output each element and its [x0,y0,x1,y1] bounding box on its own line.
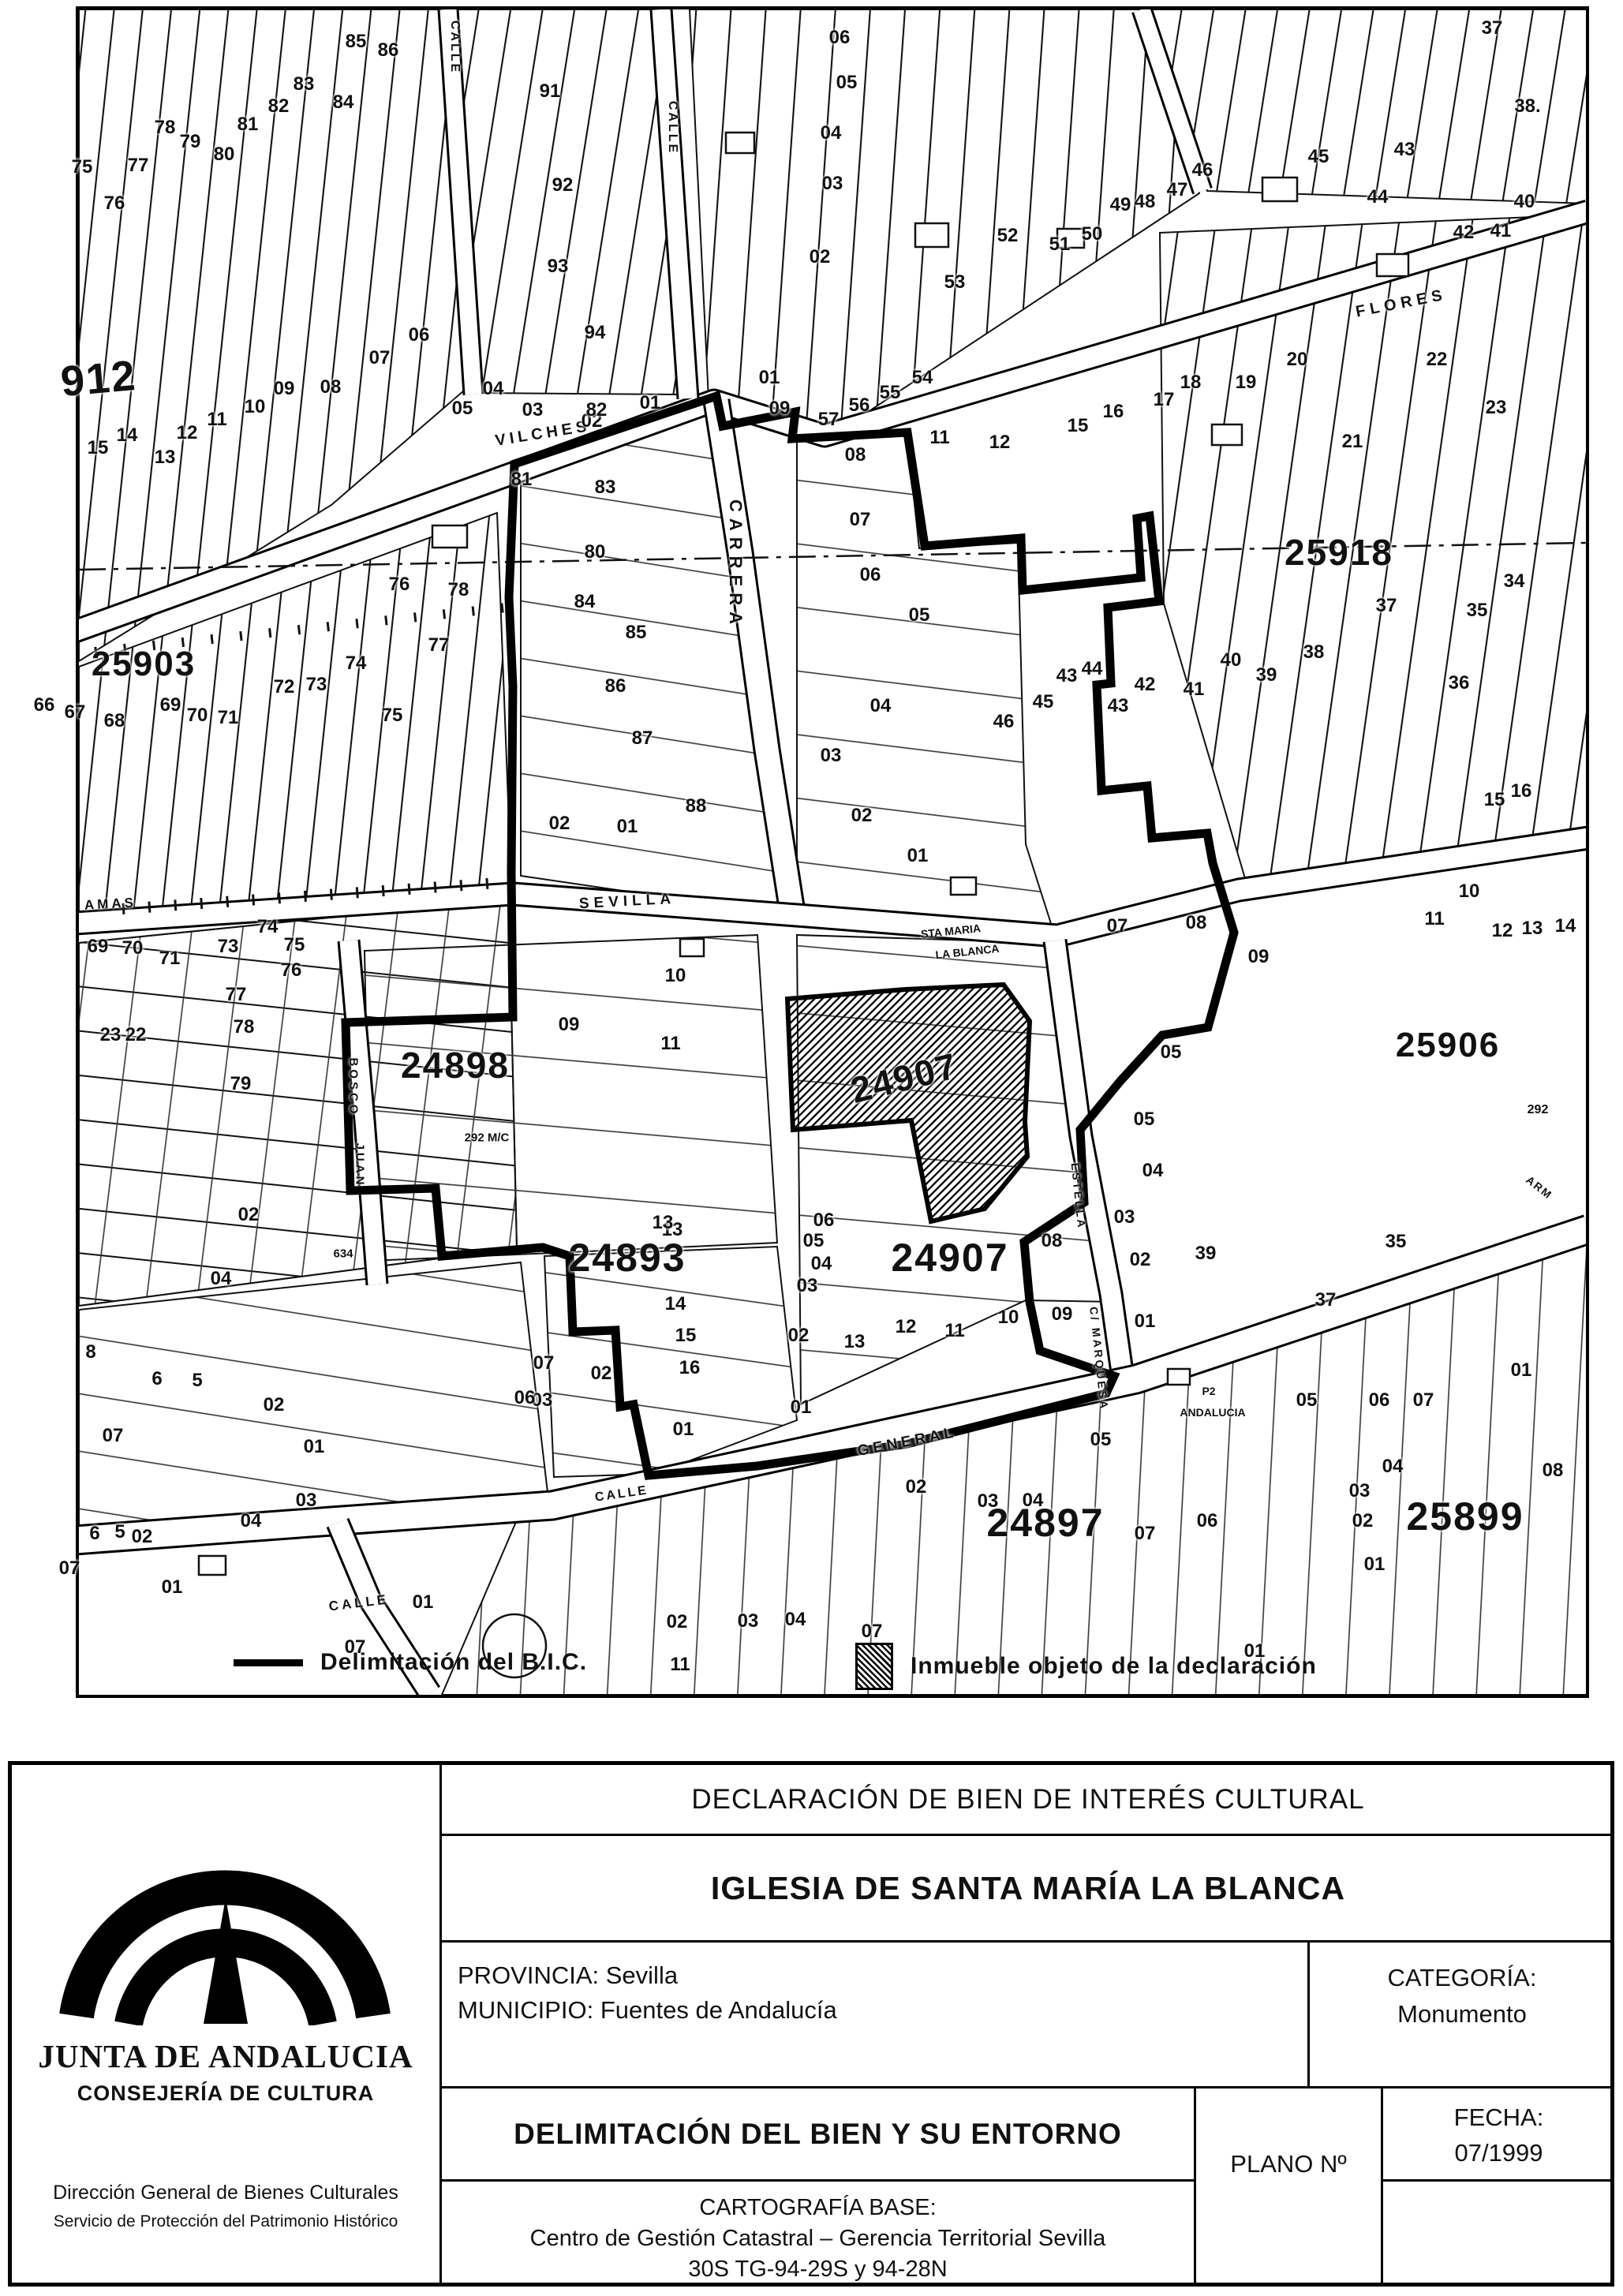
parcel-number: 77 [128,155,149,177]
parcel-number: 72 [274,676,295,698]
parcel-number: 02 [264,1394,285,1416]
parcel-number: 10 [998,1307,1019,1329]
categoria-label: CATEGORÍA: [1310,1960,1614,1996]
parcel-number: 44 [1367,186,1389,208]
parcel-number: 70 [122,937,144,959]
parcel-number: 40 [1514,191,1535,213]
parcel-number: 38. [1514,95,1540,118]
parcel-number: 11 [660,1033,680,1055]
title-block: JUNTA DE ANDALUCIA CONSEJERÍA DE CULTURA… [8,1761,1614,2287]
parcel-number: 93 [548,256,569,278]
parcel-number: 03 [522,399,544,421]
parcel-number: 01 [1364,1554,1386,1576]
block-number-label: 24893 [568,1235,686,1281]
parcel-number: 48 [1135,191,1156,213]
plan-title: DELIMITACIÓN DEL BIEN Y SU ENTORNO [442,2088,1194,2182]
parcel-number: 51 [1049,234,1071,256]
parcel-number: 07 [1413,1389,1434,1412]
parcel-number: 5 [192,1370,202,1392]
street-name-label: FLORES [1354,286,1448,322]
monument-name: IGLESIA DE SANTA MARÍA LA BLANCA [442,1836,1614,1943]
parcel-number: 02 [906,1476,927,1498]
logo-cell: JUNTA DE ANDALUCIA CONSEJERÍA DE CULTURA… [12,1765,442,2283]
parcel-number: 04 [211,1268,232,1290]
parcel-number: 76 [104,193,125,215]
carto-title: CARTOGRAFÍA BASE: [442,2193,1194,2223]
parcel-number: 53 [944,271,966,294]
parcel-number: 85 [346,31,367,53]
parcel-number: 73 [306,674,327,696]
parcel-number: 69 [160,694,181,716]
parcel-number: 20 [1287,349,1308,371]
parcel-number: 01 [1135,1311,1156,1333]
parcel-number: 45 [1033,691,1054,713]
map-annotation: P2 [1202,1385,1215,1397]
parcel-number: 76 [389,574,410,596]
parcel-number: 05 [452,398,473,420]
parcel-number: 05 [1296,1389,1318,1412]
parcel-number: 03 [738,1610,759,1632]
parcel-number: 07 [533,1352,555,1374]
legend-property-label: Inmueble objeto de la declaración [911,1653,1317,1680]
parcel-number: 83 [294,73,315,95]
parcel-number: 87 [632,727,653,750]
parcel-number: 09 [769,398,791,420]
parcel-number: 78 [155,117,176,139]
parcel-number: 91 [540,80,561,103]
parcel-number: 44 [1082,658,1103,680]
block-number-label: 24897 [986,1500,1104,1546]
parcel-number: 02 [549,813,570,835]
parcel-number: 19 [1236,372,1257,394]
block-number-label: 25903 [92,645,196,684]
parcel-number: 02 [1352,1510,1374,1532]
org-name: JUNTA DE ANDALUCIA [12,2037,439,2075]
parcel-number: 10 [1459,881,1480,903]
parcel-number: 08 [1543,1460,1564,1482]
parcel-number: 13 [1522,918,1543,940]
parcel-number: 15 [88,437,109,459]
parcel-number: 84 [333,92,354,114]
parcel-number: 11 [1424,908,1444,930]
parcel-number: 82 [586,399,608,421]
parcel-number: 88 [686,795,707,817]
parcel-number: 86 [605,675,626,697]
parcel-number: 01 [413,1591,434,1614]
parcel-number: 14 [665,1293,686,1315]
parcel-number: 12 [989,432,1011,454]
parcel-number: 73 [218,936,239,958]
street-name-label: CALLE [594,1483,649,1505]
parcel-number: 36 [1449,672,1470,694]
municipio: MUNICIPIO: Fuentes de Andalucía [458,1993,1307,2028]
parcel-number: 34 [1504,570,1525,593]
parcel-number: 12 [1492,920,1513,942]
parcel-number: 04 [870,695,892,717]
parcel-number: 55 [880,382,901,404]
parcel-number: 03 [1349,1480,1371,1502]
parcel-number: 42 [1135,674,1156,696]
parcel-number: 08 [320,376,342,398]
parcel-number: 80 [585,541,606,563]
street-name-label: JUAN [353,1143,367,1188]
parcel-number: 10 [245,396,266,418]
parcel-number: 23 [100,1024,122,1046]
parcel-number: 6 [89,1523,99,1545]
parcel-number: 66 [34,694,55,716]
parcel-number: 06 [860,564,881,586]
parcel-number: 41 [1184,679,1205,701]
parcel-number: 78 [234,1016,255,1038]
parcel-number: 07 [850,509,871,531]
parcel-number: 92 [552,174,574,196]
parcel-number: 13 [155,447,176,469]
parcel-number: 71 [218,707,239,729]
parcel-number: 09 [1052,1303,1073,1326]
parcel-number: 05 [1161,1041,1182,1064]
parcel-number: 39 [1195,1243,1217,1265]
street-name-label: C/ MARQUESA [1087,1306,1111,1412]
parcel-number: 75 [284,934,305,956]
parcel-number: 81 [511,469,533,491]
parcel-number: 06 [1369,1389,1390,1412]
carto-source: Centro de Gestión Catastral – Gerencia T… [442,2223,1194,2254]
categoria-cell: CATEGORÍA: Monumento [1310,1943,1614,2088]
block-number-label: 25906 [1396,1026,1500,1065]
street-name-label: ARM [1524,1173,1555,1202]
carto-sheets: 30S TG-94-29S y 94-28N [442,2254,1194,2285]
parcel-number: 57 [818,409,840,431]
parcel-number: 46 [993,711,1015,733]
parcel-number: 03 [978,1490,999,1513]
map-annotation: STA MARIA [920,922,981,940]
parcel-number: 35 [1467,600,1488,622]
parcel-number: 67 [65,701,86,724]
org-direction: Dirección General de Bienes Culturales [12,2182,439,2204]
map-labels-layer: 9122590325918248982590624893249072490724… [0,0,1623,1704]
parcel-number: 22 [1427,349,1448,371]
parcel-number: 08 [845,444,866,466]
parcel-number: 49 [1110,194,1131,216]
parcel-number: 70 [187,705,208,727]
parcel-number: 03 [822,173,843,195]
fecha-label: FECHA: [1383,2100,1614,2135]
parcel-number: 04 [1023,1490,1044,1512]
street-name-label: SEVILLA [578,891,675,913]
parcel-number: 01 [759,367,780,389]
parcel-number: 43 [1108,695,1129,717]
hatch-swatch [855,1643,893,1690]
block-number-label: 24907 [847,1044,963,1112]
parcel-number: 07 [103,1425,124,1447]
block-number-label: 24898 [401,1044,510,1086]
parcel-number: 06 [514,1387,536,1409]
parcel-number: 02 [788,1325,810,1347]
legend-property: Inmueble objeto de la declaración [855,1643,1317,1690]
block-number-label: 25918 [1285,531,1393,574]
parcel-number: 01 [907,845,929,867]
street-name-label: CARRERA [725,499,746,630]
parcel-number: 39 [1256,664,1277,686]
block-number-label: 912 [58,351,138,406]
parcel-number: 09 [1248,946,1270,968]
parcel-number: 37 [1376,595,1397,617]
parcel-number: 69 [88,936,109,958]
parcel-number: 07 [1107,915,1128,937]
parcel-number: 46 [1192,159,1214,181]
parcel-number: 14 [117,424,138,447]
map-annotation: ANDALUCIA [1180,1406,1245,1419]
parcel-number: 03 [797,1275,818,1297]
parcel-number: 16 [679,1357,701,1379]
parcel-number: 80 [214,144,235,166]
parcel-number: 43 [1394,139,1415,161]
parcel-number: 07 [369,347,391,369]
parcel-number: 02 [591,1363,612,1385]
parcel-number: 23 [1486,397,1507,419]
parcel-number: 18 [1180,372,1202,394]
parcel-number: 07 [59,1557,80,1580]
parcel-number: 06 [409,324,430,346]
parcel-number: 06 [829,27,851,49]
parcel-number: 38 [1303,641,1325,664]
parcel-number: 04 [241,1510,262,1532]
parcel-number: 15 [1484,789,1505,811]
parcel-number: 54 [912,367,933,389]
block-number-label: 25899 [1406,1494,1524,1539]
parcel-number: 11 [207,409,226,431]
parcel-number: 83 [595,477,616,499]
parcel-number: 94 [585,322,606,344]
parcel-number: 06 [1197,1510,1218,1532]
parcel-number: 75 [382,705,403,727]
parcel-number: 35 [1386,1231,1407,1253]
parcel-number: 01 [162,1576,183,1599]
parcel-number: 05 [803,1230,825,1252]
parcel-number: 07 [862,1621,883,1643]
parcel-number: 50 [1082,223,1103,245]
parcel-number: 21 [1342,431,1363,453]
map-annotation: LA BLANCA [935,942,1000,961]
parcel-number: 01 [640,392,661,414]
parcel-number: 05 [909,604,930,626]
parcel-number: 43 [1056,665,1078,687]
map-annotation: 634 [333,1247,353,1261]
parcel-number: 07 [1135,1523,1156,1545]
legend-bic-label: Delimitación del B.I.C. [320,1649,587,1676]
map-annotation: 292 [1528,1103,1549,1117]
parcel-number: 11 [929,427,949,449]
parcel-number: 03 [821,745,842,767]
parcel-number: 10 [665,965,686,987]
parcel-number: 79 [230,1073,252,1095]
parcel-number: 09 [274,378,295,400]
parcel-number: 16 [1511,780,1532,802]
parcel-number: 06 [813,1210,835,1232]
street-name-label: ESTELLA [1069,1162,1089,1230]
street-name-label: VILCHES [494,417,592,451]
fecha-cell: FECHA: 07/1999 [1383,2088,1614,2182]
parcel-number: 5 [114,1521,125,1543]
parcel-number: 78 [448,579,469,601]
street-name-label: BOSCO [347,1057,361,1116]
street-name-label: CALLE [328,1591,391,1614]
declaration-header: DECLARACIÓN DE BIEN DE INTERÉS CULTURAL [442,1765,1614,1836]
street-name-label: AMAS [84,895,136,913]
parcel-number: 22 [125,1024,147,1046]
parcel-number: 04 [1382,1456,1404,1478]
parcel-number: 42 [1453,222,1475,244]
parcel-number: 01 [304,1436,325,1458]
parcel-number: 8 [85,1341,95,1363]
parcel-number: 77 [226,984,247,1006]
parcel-number: 13 [844,1331,866,1353]
parcel-number: 01 [1511,1359,1532,1382]
plano-number-cell: PLANO Nº [1194,2088,1383,2283]
parcel-number: 03 [296,1490,317,1512]
legend-bic: Delimitación del B.I.C. [234,1649,587,1676]
parcel-number: 08 [1041,1230,1063,1252]
parcel-number: 01 [673,1419,694,1441]
parcel-number: 04 [821,122,842,144]
parcel-number: 15 [1068,415,1089,437]
parcel-number: 82 [268,95,290,118]
parcel-number: 11 [670,1654,690,1676]
street-name-label: GENERAL [856,1424,959,1460]
parcel-number: 02 [667,1611,688,1633]
parcel-number: 41 [1490,220,1512,242]
parcel-number: 6 [151,1368,162,1390]
parcel-number: 13 [653,1212,674,1234]
parcel-number: 37 [1482,17,1503,39]
block-number-label: 24907 [891,1235,1008,1281]
parcel-number: 37 [1315,1289,1337,1311]
parcel-number: 77 [428,634,450,656]
scanned-plan-sheet: 9122590325918248982590624893249072490724… [0,0,1623,2296]
junta-andalucia-logo [12,1765,442,2025]
parcel-number: 02 [132,1526,153,1548]
parcel-number: 12 [896,1316,917,1338]
parcel-number: 52 [997,225,1019,247]
parcel-number: 47 [1167,179,1188,201]
org-dept: CONSEJERÍA DE CULTURA [12,2081,439,2106]
parcel-number: 71 [159,948,181,970]
parcel-number: 11 [944,1320,964,1342]
parcel-number: 16 [1103,401,1124,423]
parcel-number: 01 [791,1397,812,1419]
parcel-number: 40 [1221,649,1242,671]
parcel-number: 86 [378,39,399,62]
parcel-number: 45 [1308,146,1329,168]
parcel-number: 84 [574,591,596,613]
parcel-number: 02 [810,246,831,268]
parcel-number: 74 [346,653,367,675]
parcel-number: 04 [811,1253,832,1275]
parcel-number: 09 [559,1014,580,1036]
provincia: PROVINCIA: Sevilla [458,1958,1307,1993]
parcel-number: 68 [104,710,125,732]
parcel-number: 04 [1142,1160,1164,1182]
map-annotation: 292 M/C [465,1131,510,1145]
parcel-number: 12 [177,422,198,444]
parcel-number: 05 [1090,1429,1112,1451]
parcel-number: 75 [72,156,93,178]
parcel-number: 05 [1134,1109,1155,1131]
parcel-number: 05 [836,72,858,94]
parcel-number: 74 [257,916,279,938]
org-service: Servicio de Protección del Patrimonio Hi… [12,2212,439,2231]
parcel-number: 15 [675,1325,697,1347]
parcel-number: 85 [626,622,647,644]
parcel-number: 02 [238,1204,260,1226]
parcel-number: 02 [1130,1249,1151,1271]
parcel-number: 81 [237,114,259,136]
parcel-number: 04 [483,378,504,400]
parcel-number: 03 [1114,1206,1135,1228]
parcel-number: 04 [785,1609,806,1631]
parcel-number: 02 [851,805,873,827]
parcel-number: 01 [617,816,638,838]
bic-line-swatch [234,1659,303,1666]
street-name-label: CALLE [665,101,679,155]
parcel-number: 79 [180,131,201,153]
fecha-value: 07/1999 [1383,2135,1614,2171]
parcel-number: 08 [1186,912,1207,934]
street-name-label: CALLE [447,21,462,74]
parcel-number: 14 [1555,915,1576,937]
cartography-cell: CARTOGRAFÍA BASE: Centro de Gestión Cata… [442,2182,1194,2283]
location-cell: PROVINCIA: Sevilla MUNICIPIO: Fuentes de… [442,1943,1310,2088]
categoria-value: Monumento [1310,1996,1614,2032]
parcel-number: 17 [1154,389,1175,411]
parcel-number: 56 [849,395,870,417]
parcel-number: 76 [281,959,302,982]
